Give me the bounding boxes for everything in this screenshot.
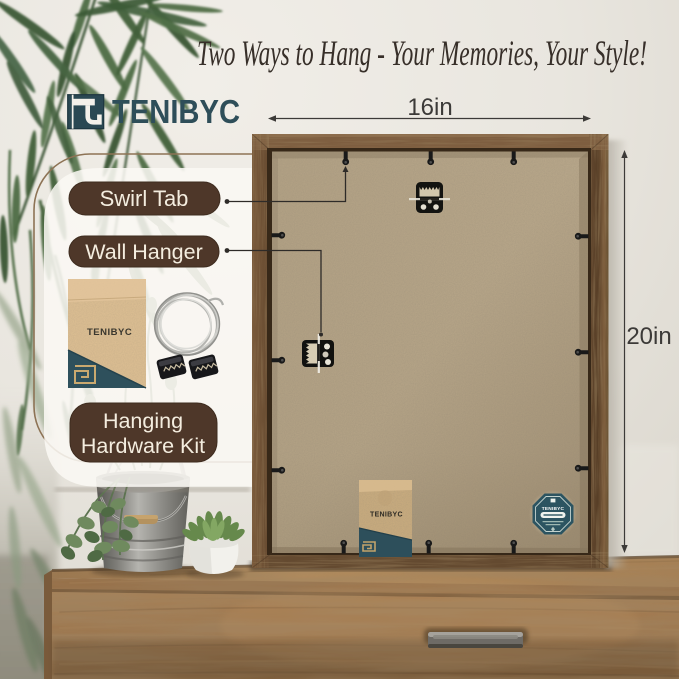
svg-text:Hanging: Hanging (103, 409, 183, 433)
svg-text:20in: 20in (626, 323, 671, 350)
svg-text:TENIBYC: TENIBYC (542, 506, 565, 512)
svg-text:TENIBYC: TENIBYC (87, 327, 132, 338)
svg-text:Two Ways to Hang - Your Memori: Two Ways to Hang - Your Memories, Your S… (197, 33, 647, 73)
svg-text:Wall Hanger: Wall Hanger (85, 240, 203, 264)
svg-text:Hardware Kit: Hardware Kit (81, 434, 205, 458)
svg-text:TENIBYC: TENIBYC (112, 93, 240, 130)
svg-text:16in: 16in (407, 94, 452, 121)
svg-text:TENIBYC: TENIBYC (370, 512, 403, 519)
svg-text:Swirl Tab: Swirl Tab (100, 186, 189, 211)
